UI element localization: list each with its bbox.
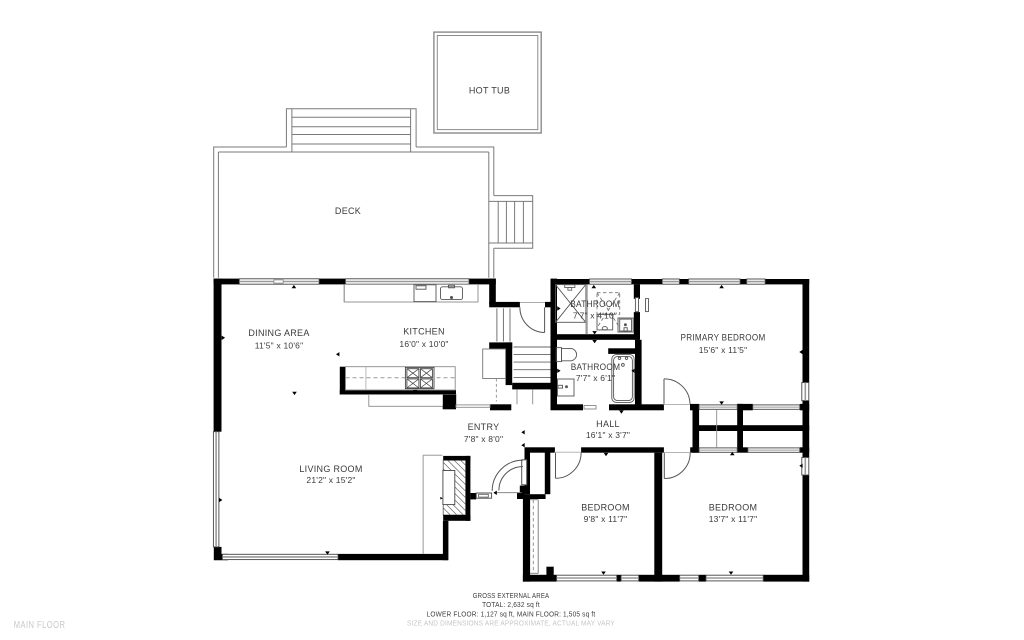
svg-text:7'7" x 6'1": 7'7" x 6'1" <box>576 373 615 383</box>
svg-text:BATHROOM: BATHROOM <box>570 299 620 309</box>
svg-text:TOTAL: 2,632 sq ft: TOTAL: 2,632 sq ft <box>482 600 540 609</box>
svg-text:15'6" x 11'5": 15'6" x 11'5" <box>699 345 748 355</box>
svg-text:16'1" x 3'7": 16'1" x 3'7" <box>586 430 630 440</box>
svg-text:DINING AREA: DINING AREA <box>248 328 309 338</box>
svg-text:HALL: HALL <box>596 419 620 429</box>
svg-text:DECK: DECK <box>335 206 361 216</box>
svg-text:13'7" x 11'7": 13'7" x 11'7" <box>709 514 758 524</box>
svg-text:BEDROOM: BEDROOM <box>709 503 758 513</box>
svg-text:GROSS EXTERNAL AREA: GROSS EXTERNAL AREA <box>473 591 550 600</box>
svg-text:ENTRY: ENTRY <box>468 422 500 432</box>
svg-text:LIVING ROOM: LIVING ROOM <box>299 464 362 474</box>
svg-text:LOWER FLOOR: 1,127 sq ft, MAIN: LOWER FLOOR: 1,127 sq ft, MAIN FLOOR: 1,… <box>427 609 596 618</box>
svg-text:KITCHEN: KITCHEN <box>403 327 445 337</box>
svg-text:7'7" x 4'10": 7'7" x 4'10" <box>573 311 617 321</box>
svg-text:21'2" x 15'2": 21'2" x 15'2" <box>306 475 355 485</box>
svg-text:7'8" x 8'0": 7'8" x 8'0" <box>464 434 503 444</box>
svg-text:BEDROOM: BEDROOM <box>581 503 630 513</box>
svg-text:HOT TUB: HOT TUB <box>469 86 510 96</box>
svg-text:MAIN FLOOR: MAIN FLOOR <box>14 620 66 631</box>
svg-text:PRIMARY BEDROOM: PRIMARY BEDROOM <box>681 333 766 343</box>
svg-text:11'5" x 10'6": 11'5" x 10'6" <box>255 340 304 350</box>
svg-text:BATHROOM: BATHROOM <box>571 362 621 372</box>
svg-text:16'0" x 10'0": 16'0" x 10'0" <box>399 339 448 349</box>
svg-text:9'8" x 11'7": 9'8" x 11'7" <box>584 514 628 524</box>
svg-text:SIZE AND DIMENSIONS ARE APPROX: SIZE AND DIMENSIONS ARE APPROXIMATE, ACT… <box>407 618 615 627</box>
